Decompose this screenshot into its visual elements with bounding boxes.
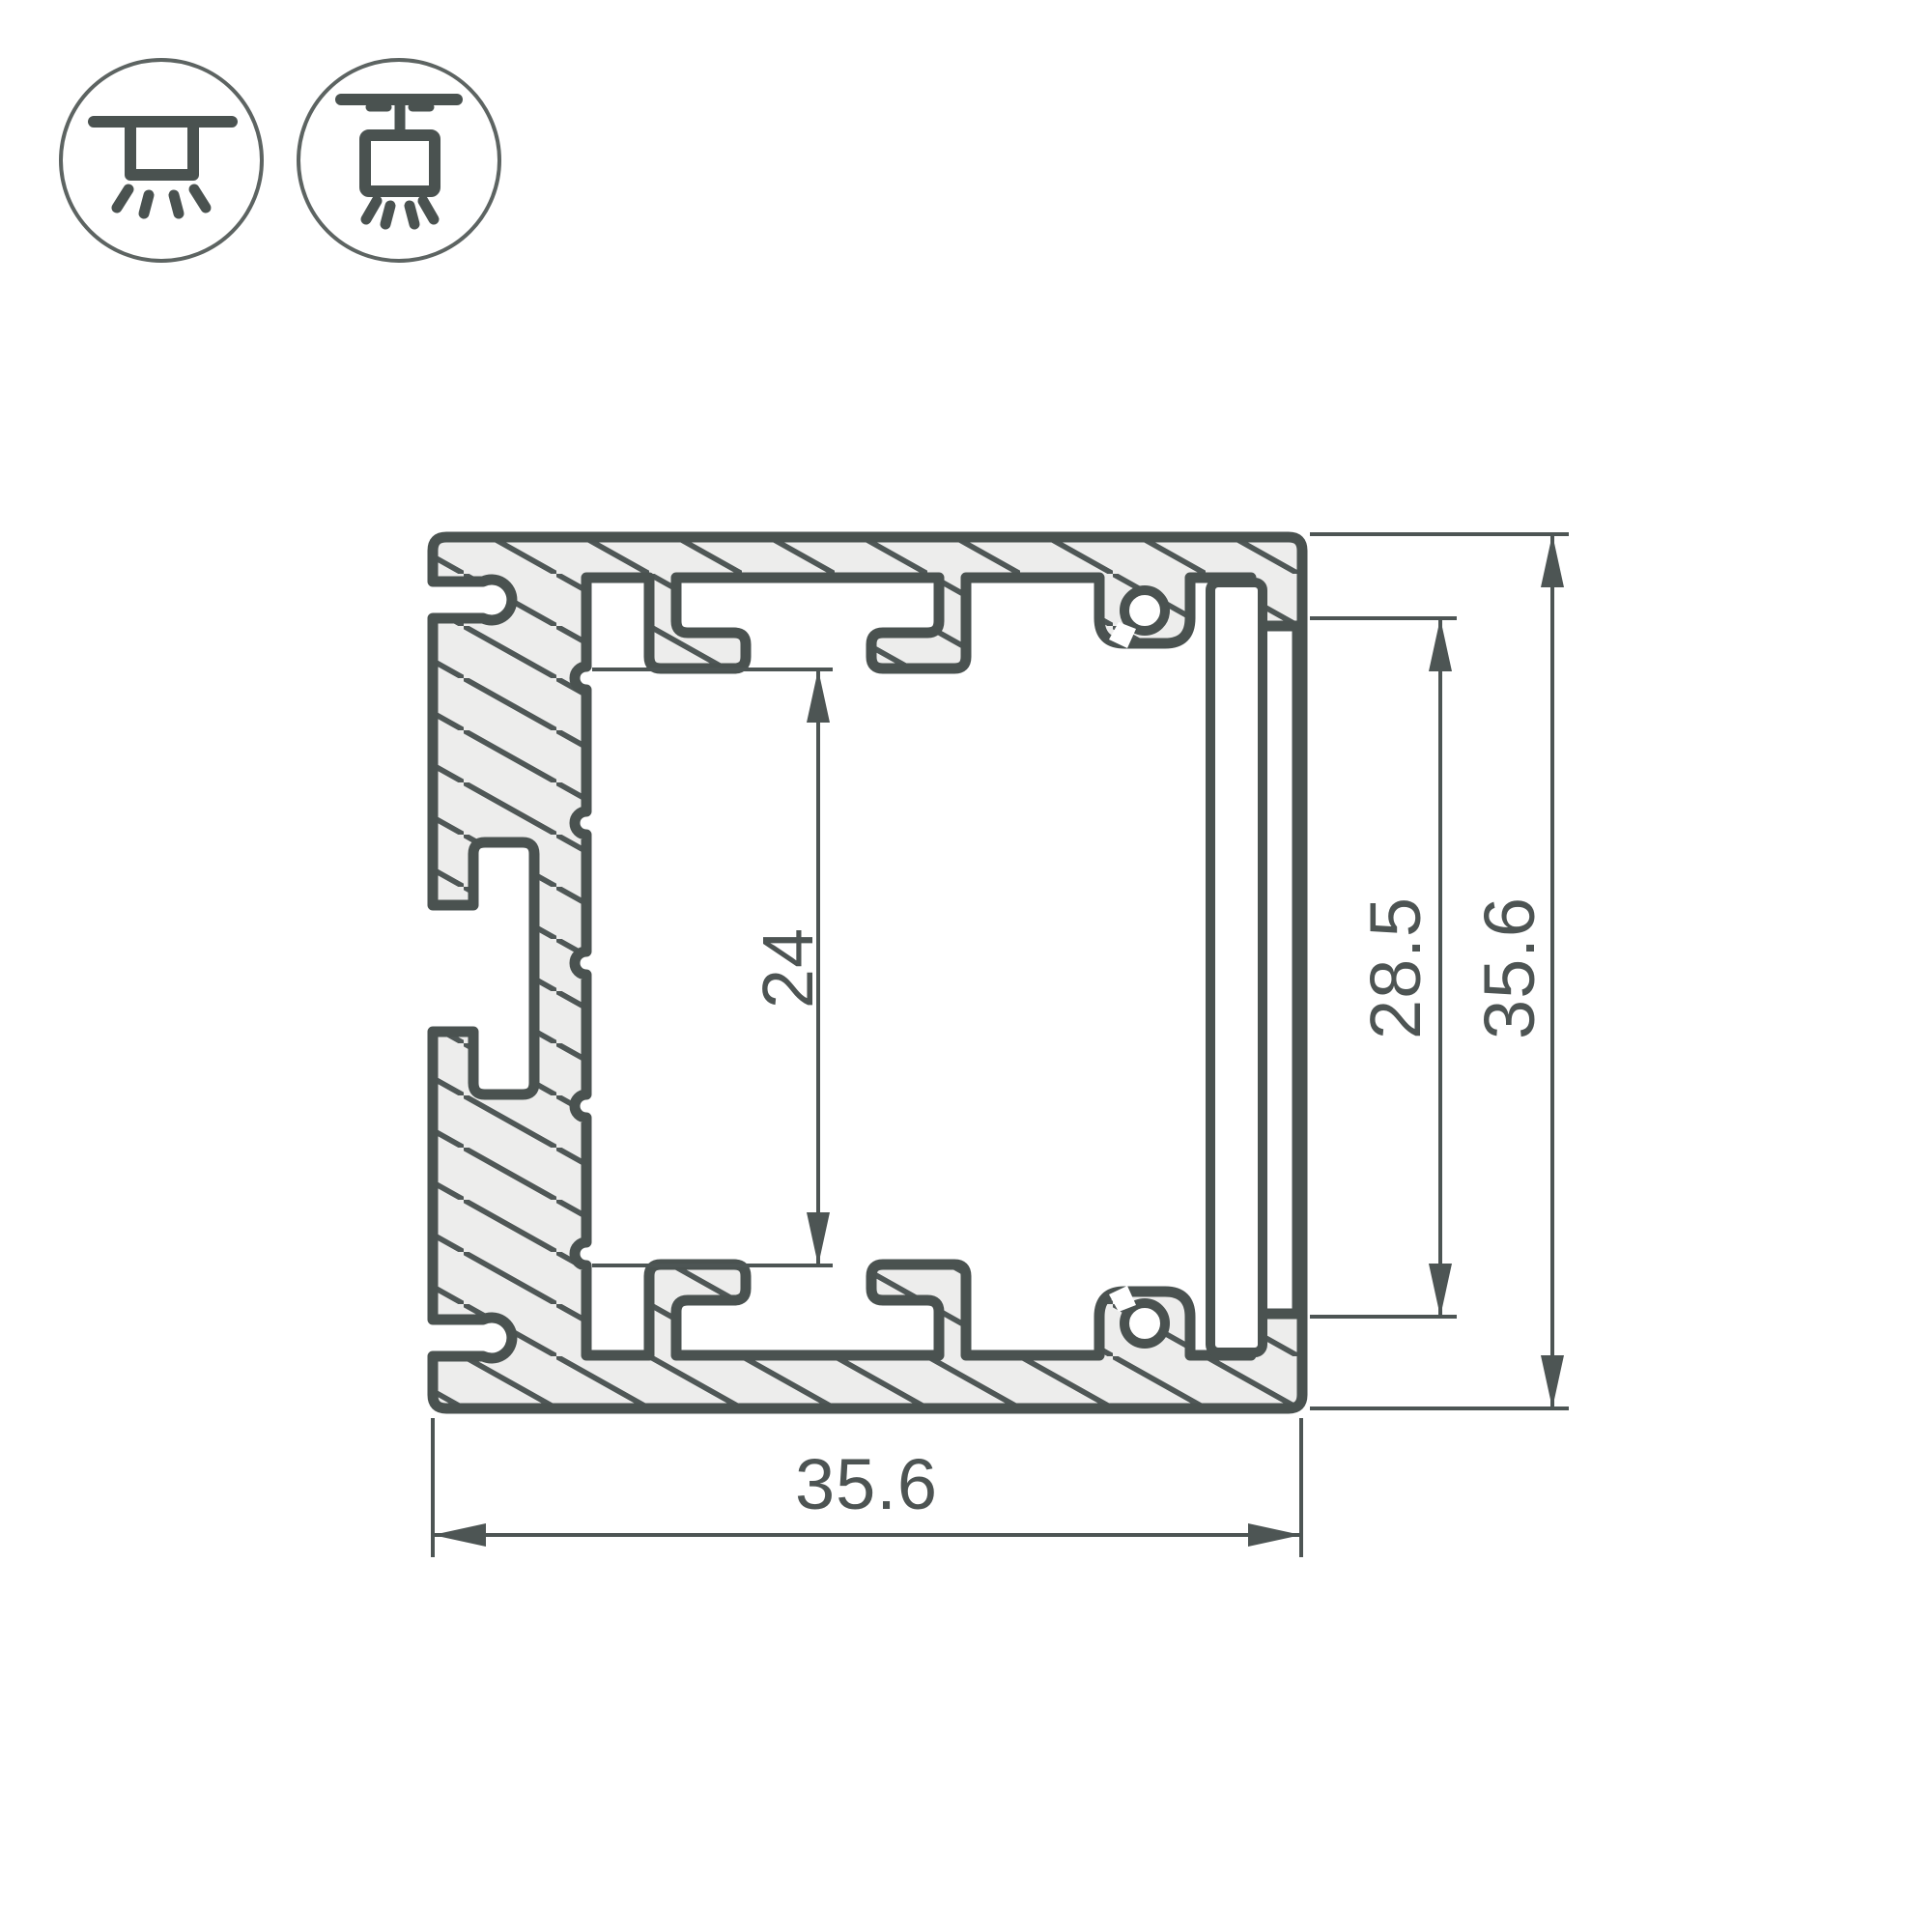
aluminium-body (433, 537, 1302, 1408)
arrowhead-down-icon (1429, 1264, 1452, 1317)
suspended-mount-icon (298, 60, 499, 261)
diffuser-plate (1210, 582, 1263, 1352)
arrowhead-down-icon (807, 1212, 830, 1265)
dim-label-inner-cavity: 24 (748, 927, 828, 1009)
arrowhead-up-icon (1429, 618, 1452, 671)
icon-circle (61, 60, 262, 261)
icon-circle (298, 60, 499, 261)
dim-inner-cavity: 24 (592, 669, 833, 1265)
arrowhead-up-icon (807, 669, 830, 723)
mount-type-icons (61, 60, 499, 261)
dim-overall-width: 35.6 (433, 1418, 1301, 1557)
dim-diffuser-opening: 28.5 (1310, 618, 1457, 1317)
arrowhead-down-icon (1541, 1355, 1564, 1408)
arrowhead-up-icon (1541, 534, 1564, 587)
surface-mount-icon (61, 60, 262, 261)
dim-label-overall-width: 35.6 (795, 1444, 938, 1524)
profile-drawing: 24 28.5 35.6 35.6 (0, 0, 1932, 1932)
profile-cross-section (433, 537, 1302, 1408)
dim-label-diffuser-opening: 28.5 (1355, 896, 1435, 1039)
arrowhead-right-icon (1248, 1523, 1301, 1547)
screw-boss-hole-top (1124, 590, 1165, 631)
arrowhead-left-icon (433, 1523, 486, 1547)
dim-label-overall-height: 35.6 (1469, 896, 1549, 1039)
screw-boss-hole-bottom (1124, 1303, 1165, 1344)
